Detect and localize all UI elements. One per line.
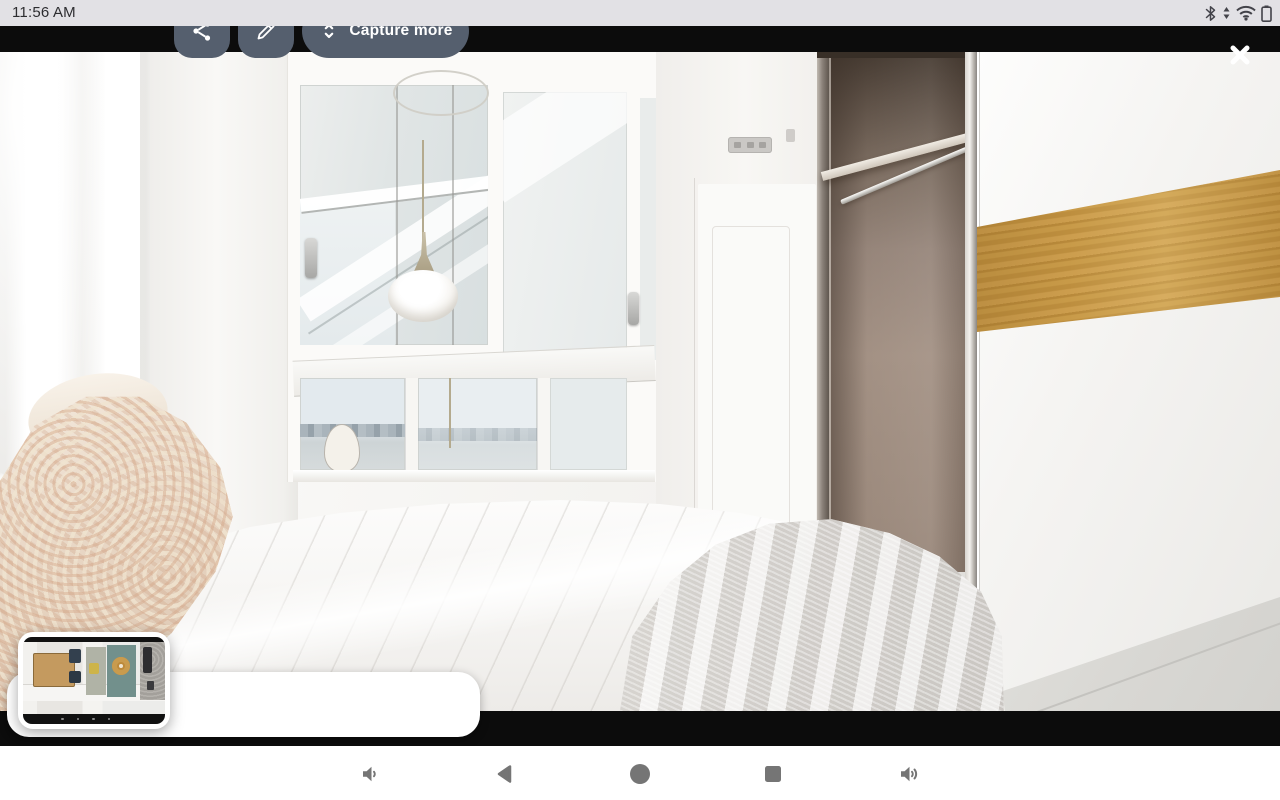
status-bar: 11:56 AM	[0, 0, 1280, 26]
pendant-lamp-shade	[388, 270, 458, 322]
thumb-chair	[69, 671, 81, 683]
wifi-icon	[1236, 5, 1256, 21]
volume-down-button[interactable]	[356, 760, 384, 788]
screenshot-thumbnail[interactable]	[18, 632, 170, 729]
volume-down-icon	[358, 762, 382, 786]
thumb-letterbox-top	[23, 637, 165, 642]
window-sill	[293, 470, 655, 482]
window-pane-edge	[640, 98, 656, 360]
window-frame	[287, 52, 660, 482]
ceiling-ring	[393, 70, 489, 116]
window-handle-right	[628, 292, 639, 325]
battery-icon	[1261, 5, 1272, 22]
status-icons	[1204, 4, 1272, 22]
close-icon	[1227, 42, 1253, 68]
thumb-nav-dot	[108, 718, 111, 721]
volume-up-button[interactable]	[895, 760, 923, 788]
clock: 11:56 AM	[12, 4, 76, 21]
wall-socket-plate	[728, 137, 772, 153]
thumb-dark-chair	[143, 647, 152, 673]
thumb-yellow-chair	[89, 663, 99, 674]
closet-top-lintel	[817, 52, 970, 58]
thumbnail-image	[23, 637, 165, 724]
window-pane-lower-right	[550, 378, 627, 470]
network-updown-icon	[1222, 5, 1231, 21]
navigation-bar	[0, 746, 1280, 800]
thumb-nav-dot	[61, 718, 64, 721]
lamp-cord-reflection	[449, 378, 451, 448]
android-screenshot-preview-screen: 11:56 AM	[0, 0, 1280, 800]
oak-wood-accent-stripe	[977, 162, 1280, 342]
screenshot-photo-bedroom	[0, 52, 1280, 711]
thumb-nav-dot	[92, 718, 95, 721]
window-pane-upper-right	[503, 92, 627, 354]
sliding-wardrobe-door	[977, 52, 1280, 711]
close-button[interactable]	[1227, 42, 1253, 68]
back-icon	[493, 762, 517, 786]
recents-icon	[761, 762, 785, 786]
window-pane-lower-left	[300, 378, 405, 470]
back-button[interactable]	[491, 760, 519, 788]
thumb-chair	[69, 649, 81, 663]
volume-up-icon	[897, 762, 921, 786]
bluetooth-icon	[1204, 5, 1217, 22]
glass-light-streak	[503, 92, 627, 203]
window-pane-lower-middle	[418, 378, 537, 470]
thumb-letterbox-bottom	[23, 714, 165, 724]
home-icon	[628, 762, 652, 786]
door-recessed-panel	[712, 226, 790, 546]
city-horizon	[418, 428, 537, 441]
recents-button[interactable]	[759, 760, 787, 788]
wall-switch-small	[786, 129, 795, 142]
thumb-nav-dot	[77, 718, 80, 721]
home-button[interactable]	[626, 760, 654, 788]
thumb-round-table	[112, 657, 130, 675]
thumb-dark-item	[147, 681, 154, 690]
window-handle-left	[305, 238, 317, 278]
screenshot-stage	[0, 26, 1280, 746]
